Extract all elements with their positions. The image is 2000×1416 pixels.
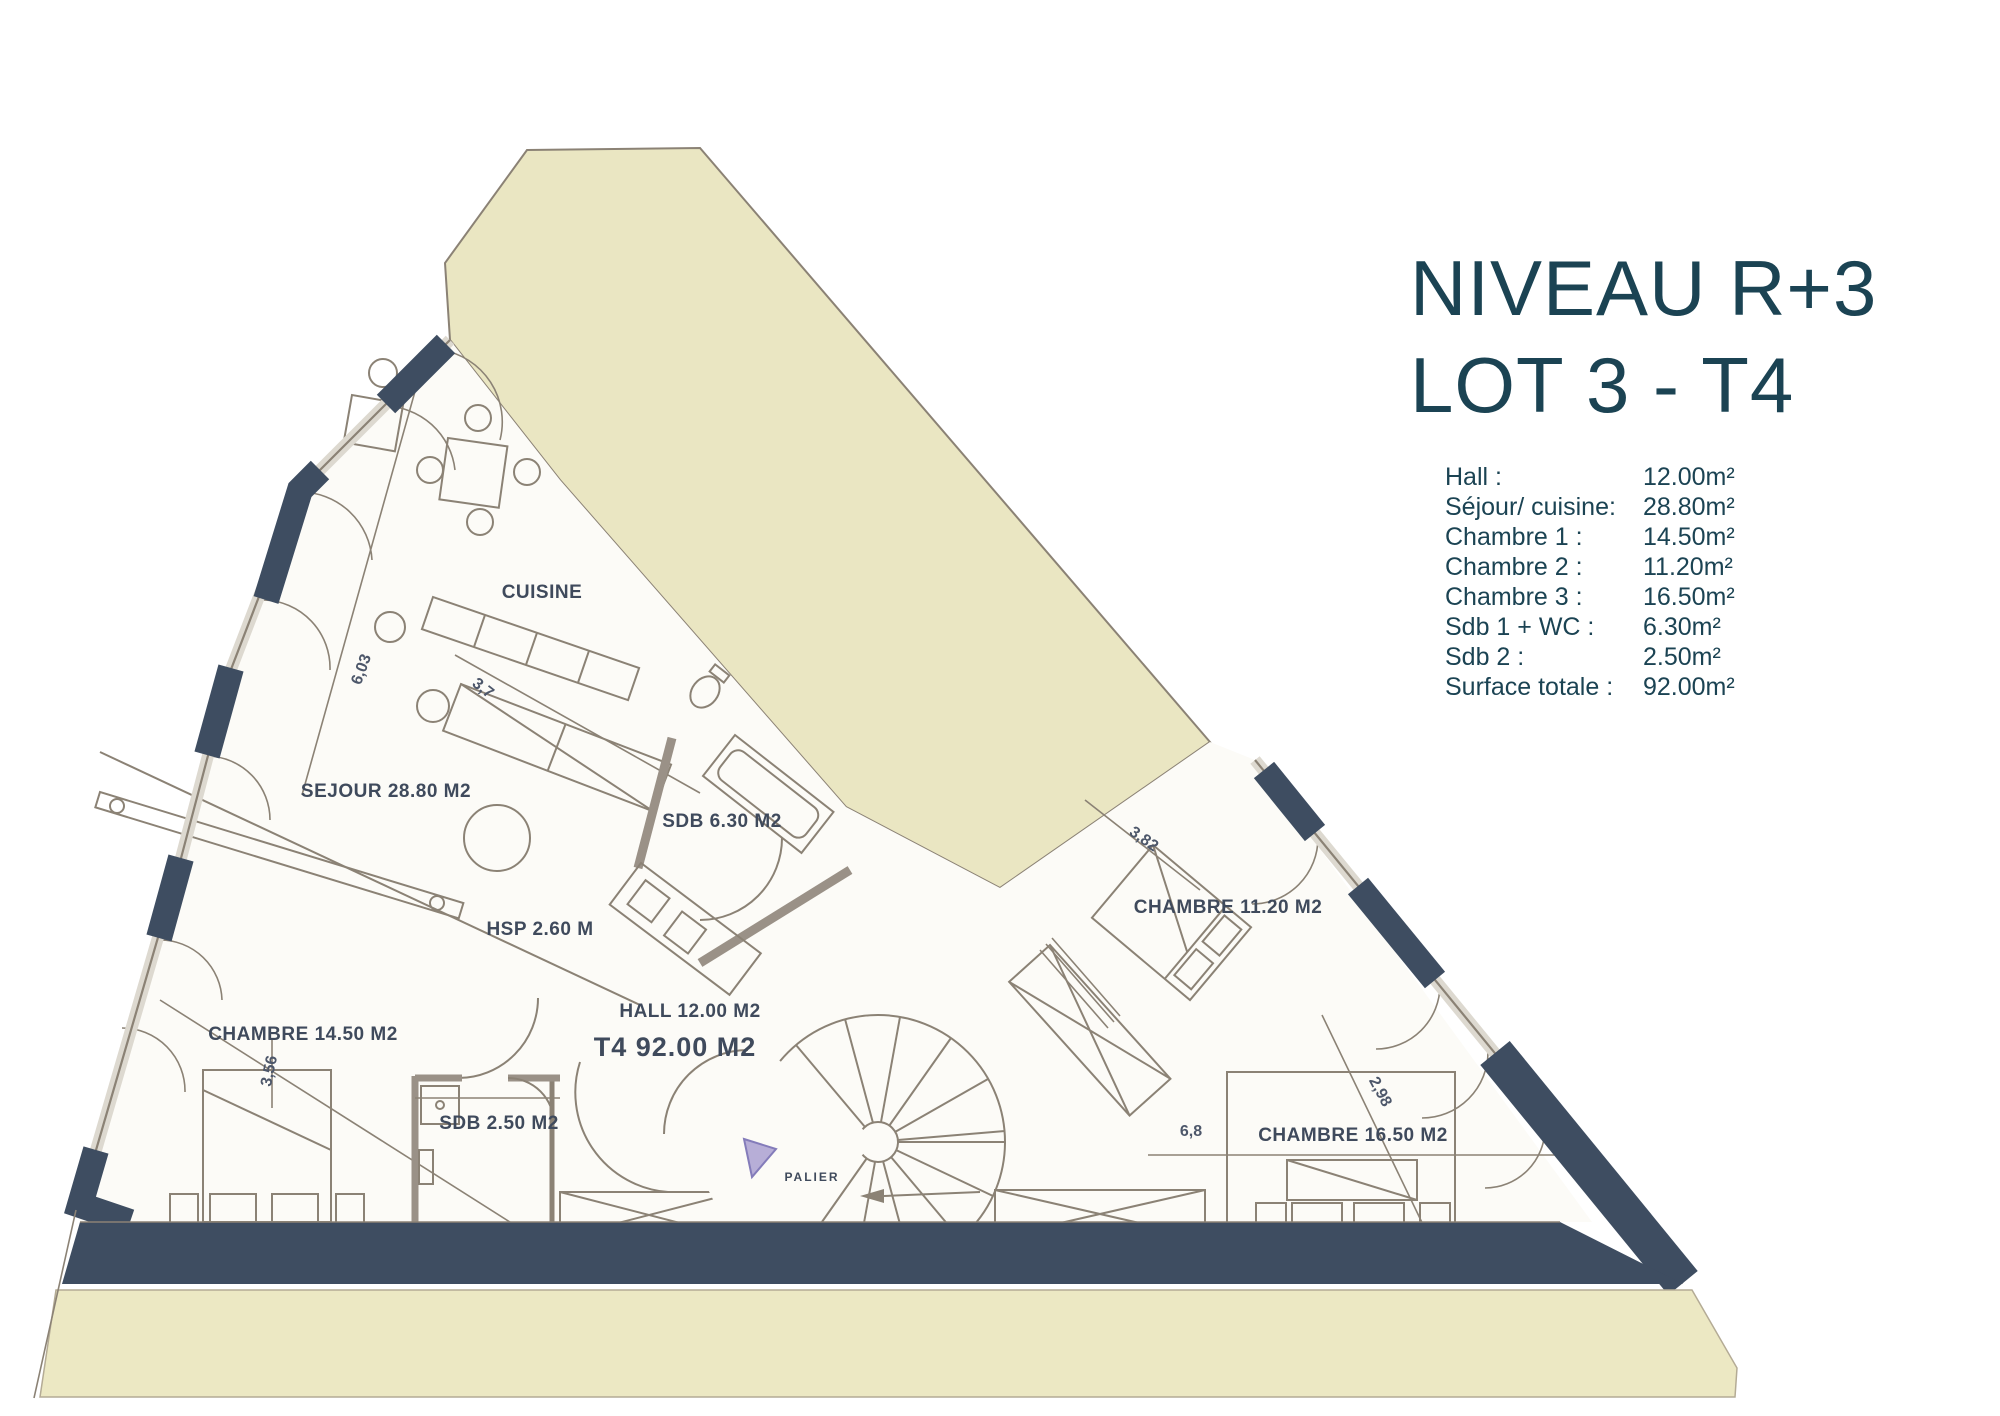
page: CUISINE SEJOUR 28.80 M2 SDB 6.30 M2 HSP … [0,0,2000,1416]
legend-row: Séjour/ cuisine: 28.80m² [1445,492,1803,522]
legend-row: Sdb 2 : 2.50m² [1445,642,1803,672]
legend-value: 11.20m² [1643,552,1803,582]
legend-label: Chambre 2 : [1445,552,1643,582]
legend-row: Chambre 2 : 11.20m² [1445,552,1803,582]
label-sdb1: SDB 6.30 M2 [662,811,782,832]
label-chambre1: CHAMBRE 14.50 M2 [208,1024,398,1045]
legend-label: Séjour/ cuisine: [1445,492,1643,522]
label-hall: HALL 12.00 M2 [619,1001,760,1022]
legend-row: Surface totale : 92.00m² [1445,672,1803,702]
title-block: NIVEAU R+3 LOT 3 - T4 [1410,240,1877,434]
legend-row: Sdb 1 + WC : 6.30m² [1445,612,1803,642]
legend-row: Chambre 1 : 14.50m² [1445,522,1803,552]
legend-value: 16.50m² [1643,582,1803,612]
legend-value: 14.50m² [1643,522,1803,552]
legend-label: Sdb 2 : [1445,642,1643,672]
legend-row: Chambre 3 : 16.50m² [1445,582,1803,612]
bottom-terrace-strip [40,1290,1737,1397]
legend-value: 92.00m² [1643,672,1803,702]
legend-label: Hall : [1445,462,1643,492]
legend-label: Surface totale : [1445,672,1643,702]
title-line-1: NIVEAU R+3 [1410,240,1877,337]
legend-value: 12.00m² [1643,462,1803,492]
legend-value: 6.30m² [1643,612,1803,642]
dim-chambre3-width: 6,8 [1180,1123,1202,1140]
floor-plan: CUISINE SEJOUR 28.80 M2 SDB 6.30 M2 HSP … [0,0,2000,1416]
label-cuisine: CUISINE [502,582,583,603]
legend-label: Sdb 1 + WC : [1445,612,1643,642]
bottom-wall-band [62,1222,1683,1284]
label-chambre3: CHAMBRE 16.50 M2 [1258,1125,1448,1146]
area-legend: Hall : 12.00m² Séjour/ cuisine: 28.80m² … [1445,462,1803,702]
legend-label: Chambre 1 : [1445,522,1643,552]
label-lot-area: T4 92.00 M2 [594,1032,757,1062]
label-sdb2: SDB 2.50 M2 [439,1113,559,1134]
label-palier: PALIER [784,1170,839,1184]
label-hsp: HSP 2.60 M [486,919,593,940]
legend-value: 28.80m² [1643,492,1803,522]
legend-value: 2.50m² [1643,642,1803,672]
legend-row: Hall : 12.00m² [1445,462,1803,492]
label-chambre2: CHAMBRE 11.20 M2 [1134,897,1323,918]
label-sejour: SEJOUR 28.80 M2 [301,781,471,802]
title-line-2: LOT 3 - T4 [1410,337,1877,434]
legend-label: Chambre 3 : [1445,582,1643,612]
